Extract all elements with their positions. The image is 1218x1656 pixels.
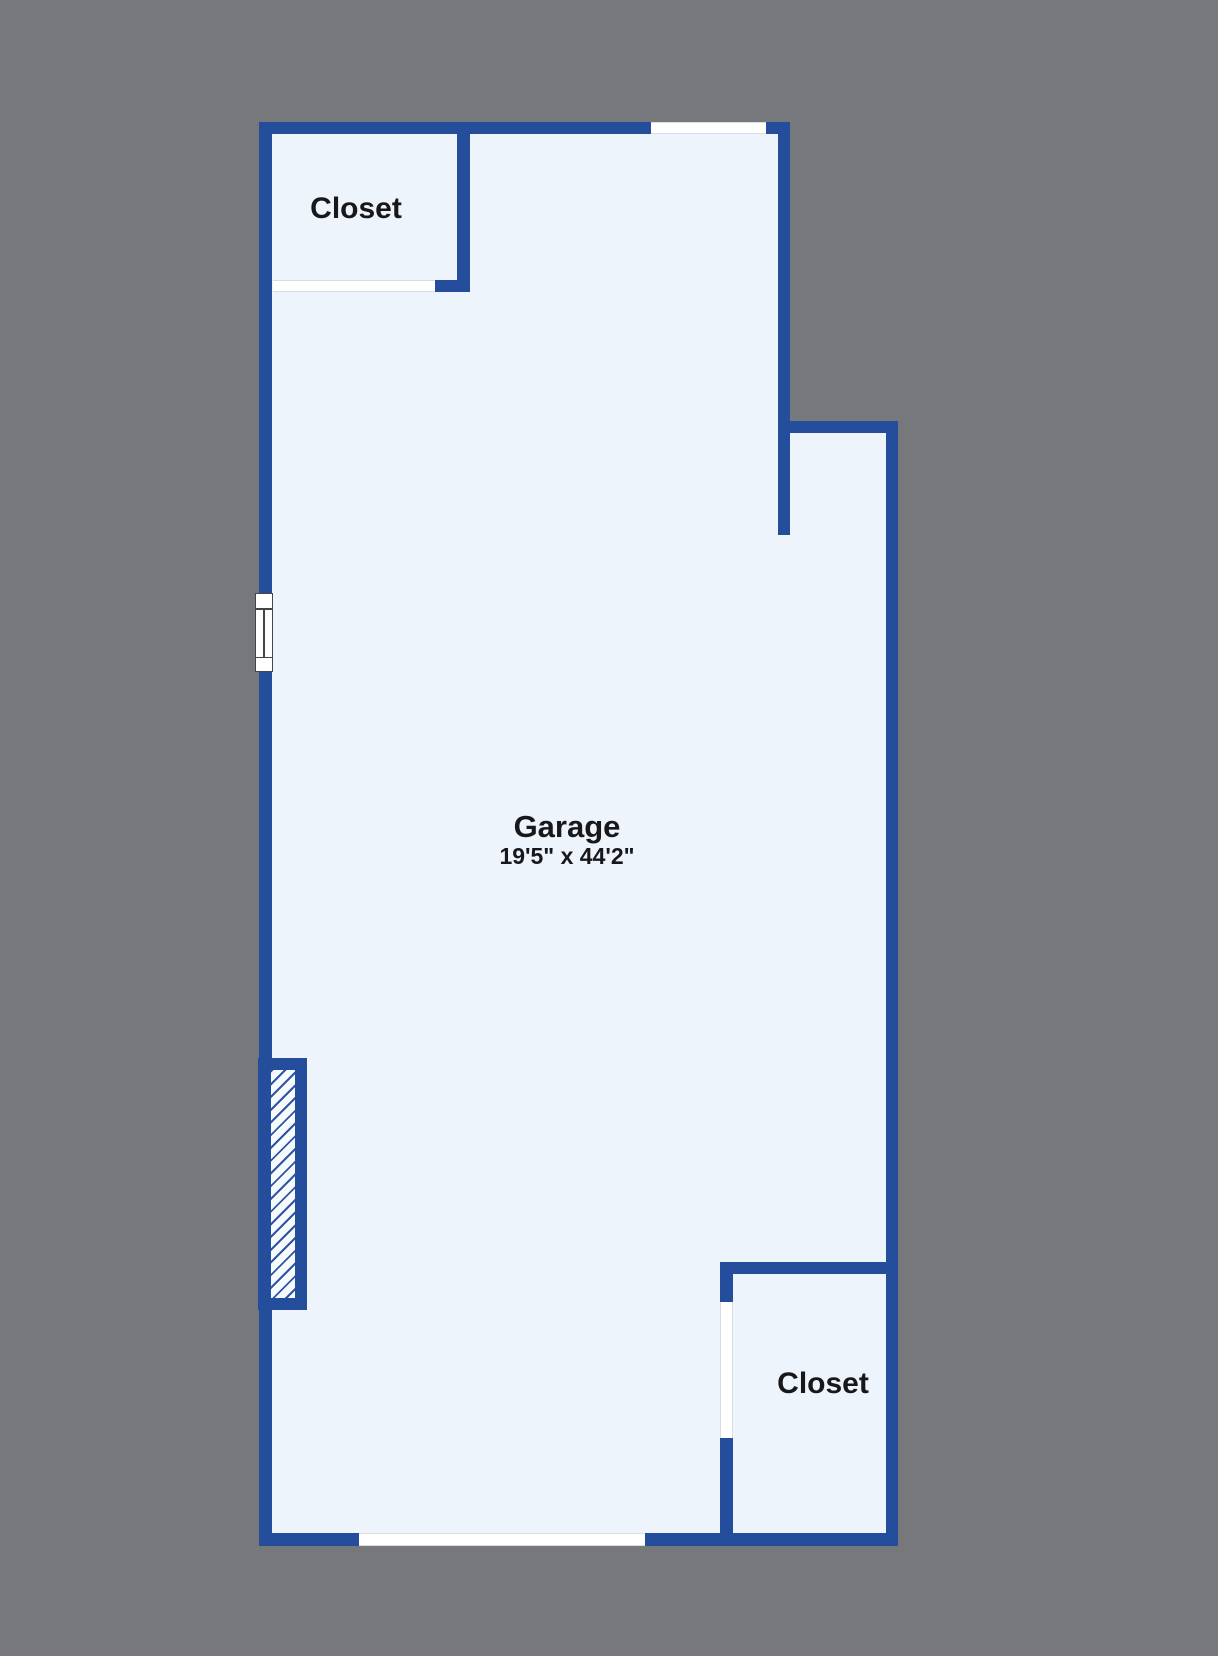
door-opening-closet-top: [273, 280, 435, 292]
room-name-garage: Garage: [499, 811, 634, 842]
wall-garage-right: [778, 122, 790, 535]
window-opening-top-wall: [651, 122, 766, 134]
room-dimensions-garage: 19'5" x 44'2": [499, 842, 634, 871]
room-label-closet-bottom: Closet: [777, 1367, 869, 1401]
garage-door-opening: [359, 1533, 645, 1546]
wall-closet-top-bottom: [435, 280, 470, 292]
window-mullion-line: [263, 609, 265, 657]
hatched-wall-feature: [258, 1058, 307, 1310]
door-opening-closet-bottom: [720, 1302, 733, 1438]
room-label-garage: Garage 19'5" x 44'2": [499, 811, 634, 871]
wall-closet-bottom-top: [720, 1262, 898, 1274]
floor-plan-canvas: Closet Garage 19'5" x 44'2" Closet: [0, 0, 1218, 1656]
room-label-closet-top: Closet: [310, 192, 402, 226]
wall-extension-right: [886, 421, 898, 1546]
hatch-pattern: [271, 1070, 295, 1298]
wall-left: [259, 122, 272, 1546]
wall-extension-top: [778, 421, 898, 433]
window-icon: [255, 593, 273, 672]
wall-closet-top-right: [457, 122, 470, 292]
